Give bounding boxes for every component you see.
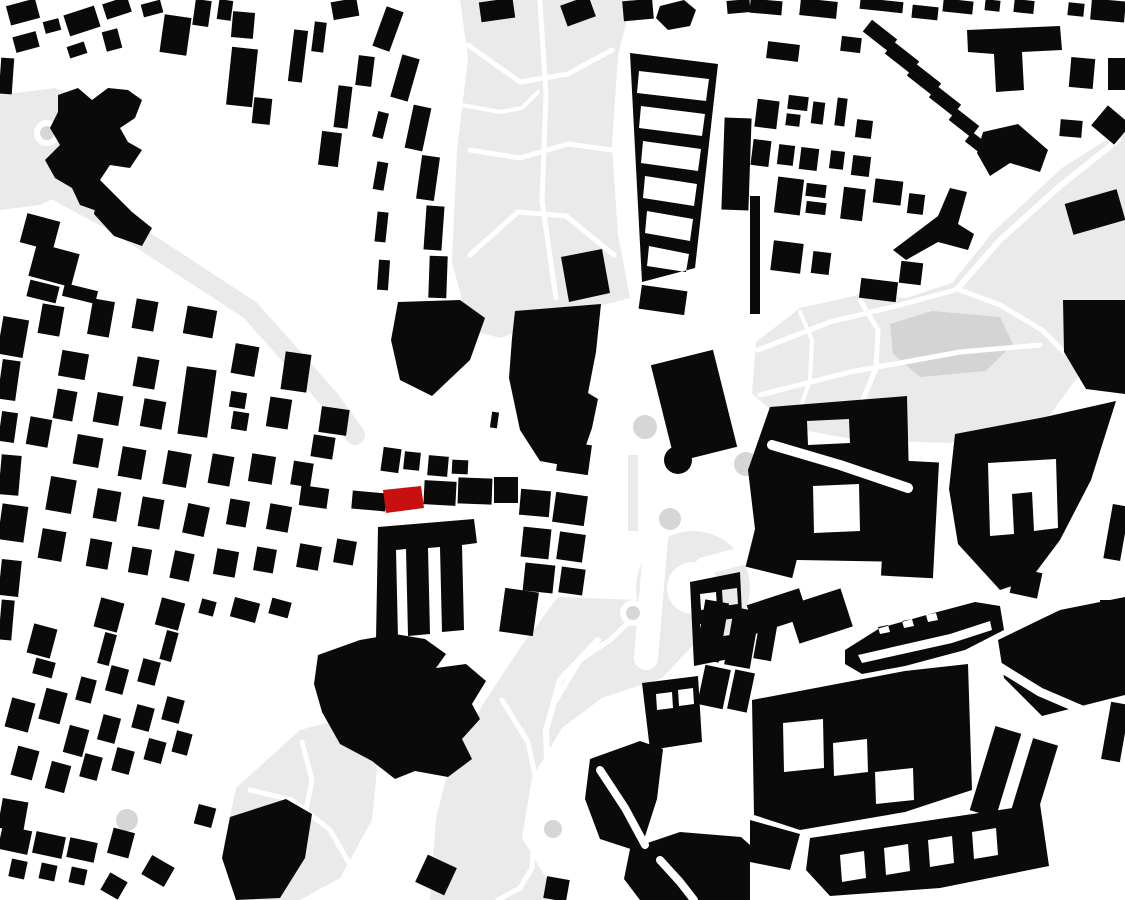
building-footprint [159,14,191,55]
building-footprint [208,453,235,486]
building-footprint [43,18,62,34]
building-footprint [851,155,871,177]
building-footprint [1013,0,1034,14]
building-footprint [855,119,873,139]
building-footprint [416,155,440,201]
building-footprint [296,543,322,570]
building-footprint [231,343,260,377]
building-footprint [1100,600,1125,648]
building-footprint [552,492,588,526]
building-footprint [310,434,335,459]
building-footprint [290,461,314,488]
building-footprint [102,0,132,20]
building-footprint [523,563,556,594]
building-footprint [230,597,260,623]
building-footprint [799,0,838,19]
building-footprint [266,503,292,532]
building-footprint [169,550,194,582]
building-footprint [0,411,18,443]
building-footprint [873,178,904,205]
building-footprint [390,54,419,101]
building-footprint [0,454,22,496]
building-footprint [0,503,28,542]
fountain-center [544,820,562,838]
building-footprint [749,0,782,15]
building-footprint [133,356,160,389]
building-footprint [183,306,217,339]
building-footprint [159,630,178,662]
building-footprint [494,477,518,503]
building-footprint [750,139,771,167]
building-footprint [799,147,820,171]
building-footprint [111,747,135,775]
building-footprint [766,41,800,62]
building-footprint [630,53,718,282]
building-footprint [829,150,845,170]
building-footprint [774,177,804,216]
building-footprint [490,412,499,429]
building-footprint [45,761,72,793]
building-footprint [622,0,654,21]
building-footprint [805,183,826,198]
building-footprint [391,300,485,396]
tree-canopy [116,809,138,831]
building-footprint [805,201,826,215]
building-footprint [107,828,135,859]
building-footprint [750,196,760,314]
building-footprint [967,26,1062,92]
building-footprint [405,105,432,152]
building-footprint [651,350,737,463]
building-footprint [198,598,216,616]
building-footprint [0,316,29,358]
tree-canopy [659,508,681,530]
building-footprint [155,597,185,630]
building-footprint [899,261,924,286]
building-footprint [333,538,357,565]
building-footprint [63,725,90,757]
tree-canopy [633,415,657,439]
building-footprint [86,538,113,569]
building-footprint [140,398,167,429]
building-footprint [69,867,88,886]
building-footprint [427,455,449,477]
building-footprint [984,0,1000,12]
building-footprint [1101,702,1125,762]
building-footprint [131,704,155,732]
building-footprint [333,85,352,128]
building-footprint [213,548,239,577]
building-footprint [53,388,78,421]
building-footprint [519,489,551,518]
building-footprint [787,95,809,111]
building-footprint [38,303,65,336]
building-footprint [161,696,185,724]
building-footprint [66,837,98,862]
building-footprint [105,665,129,695]
building-footprint [143,738,166,764]
building-footprint [0,600,15,641]
building-footprint [162,450,192,488]
building-footprint [845,602,1004,674]
building-footprint [299,485,330,509]
building-footprint [192,0,211,27]
building-footprint [226,47,258,107]
building-footprint [318,131,342,167]
building-footprint [97,714,121,744]
building-footprint [318,406,349,436]
building-footprint [0,359,21,401]
park-area [628,455,638,531]
building-footprint [811,251,832,275]
building-footprint [5,697,36,732]
building-footprint [32,658,55,679]
building-footprint [372,111,389,139]
building-footprint [6,0,40,26]
building-footprint [377,260,390,291]
building-footprint [664,446,692,474]
building-footprint [280,351,311,392]
building-footprint [355,55,375,87]
building-footprint [0,559,22,597]
building-footprint [543,876,569,900]
building-footprint [97,632,117,666]
building-footprint [58,350,89,380]
building-footprint [726,0,750,14]
building-footprint [132,298,159,331]
building-footprint [376,519,477,640]
building-footprint [639,285,688,315]
building-footprint [79,753,103,781]
building-footprint [811,101,826,124]
figure-ground-map [0,0,1125,900]
building-footprint [231,411,250,431]
building-footprint [141,855,175,887]
building-footprint [27,623,58,658]
building-footprint [177,366,216,438]
building-footprint [266,396,292,429]
fountain-center [626,606,640,620]
building-footprint [226,498,250,527]
building-footprint [697,665,731,710]
building-footprint [770,240,803,273]
building-footprint [558,566,585,595]
building-footprint [138,496,165,529]
building-footprint [1010,567,1043,598]
building-footprint [911,5,938,21]
building-footprint [26,280,59,304]
building-footprint [403,451,421,471]
building-footprint [288,29,308,82]
building-footprint [100,872,127,899]
building-footprint [423,205,444,250]
building-footprint [38,528,67,562]
building-footprint [423,480,456,506]
building-footprint [380,447,401,473]
building-footprint [585,741,663,852]
building-footprint [45,476,77,514]
building-footprint [102,28,123,51]
building-footprint [141,0,164,17]
building-footprint [67,42,88,59]
building-footprint [194,804,217,828]
building-footprint [217,0,234,21]
building-footprint [1103,504,1125,561]
building-footprint [0,58,14,95]
building-footprint [499,588,539,636]
building-footprint [509,304,601,468]
building-footprint [942,0,973,15]
building-footprint [94,597,125,632]
building-footprint [28,243,79,287]
building-footprint [39,863,58,882]
building-footprint [458,477,493,504]
building-footprint [374,212,388,243]
building-footprint [893,188,974,260]
building-footprint [0,825,32,855]
building-footprint [93,392,124,426]
building-footprint [556,531,586,562]
building-footprint [10,746,39,781]
building-footprint [8,859,27,880]
building-footprint [231,11,255,39]
building-footprint [840,36,862,53]
building-footprint [38,688,68,725]
city-map-canvas [0,0,1125,900]
building-footprint [727,669,755,712]
building-footprint [248,453,276,484]
building-footprint [785,113,800,127]
building-footprint [137,658,161,686]
building-footprint [777,144,795,166]
building-footprint [87,298,115,337]
building-footprint [171,730,192,755]
building-footprint [1067,2,1084,17]
building-footprint [840,187,866,221]
building-footprint [1090,0,1125,22]
building-footprint [977,124,1048,176]
building-footprint [93,488,122,522]
building-footprint [752,664,972,830]
building-footprint [1059,119,1082,138]
building-footprint [428,256,447,299]
building-footprint [63,6,100,37]
building-footprint [253,546,277,573]
building-footprint [75,676,97,703]
building-footprint [311,21,327,52]
highlighted-building[interactable] [383,486,424,513]
building-footprint [229,391,247,409]
building-footprint [331,0,360,20]
building-footprint [1069,57,1096,89]
building-footprint [128,546,152,575]
building-footprint [252,97,273,125]
building-footprint [860,0,904,13]
building-footprint [907,193,925,215]
building-footprint [118,446,147,480]
building-footprint [1108,58,1125,90]
building-footprint [351,491,386,512]
building-footprint [268,598,291,619]
building-footprint [834,97,847,126]
building-footprint [373,161,389,190]
building-footprint [62,283,98,304]
building-footprint [452,460,469,475]
building-footprint [561,249,610,302]
building-footprint [656,0,696,30]
building-footprint [521,527,552,560]
park-path [646,514,658,658]
building-footprint [94,180,152,246]
building-footprint [721,118,751,211]
building-footprint [12,31,39,53]
building-footprint [182,503,210,537]
building-footprint [642,676,702,750]
building-footprint [372,6,403,52]
building-footprint [73,434,104,468]
building-footprint [26,416,53,447]
building-footprint [32,831,66,859]
building-footprint [754,99,779,129]
